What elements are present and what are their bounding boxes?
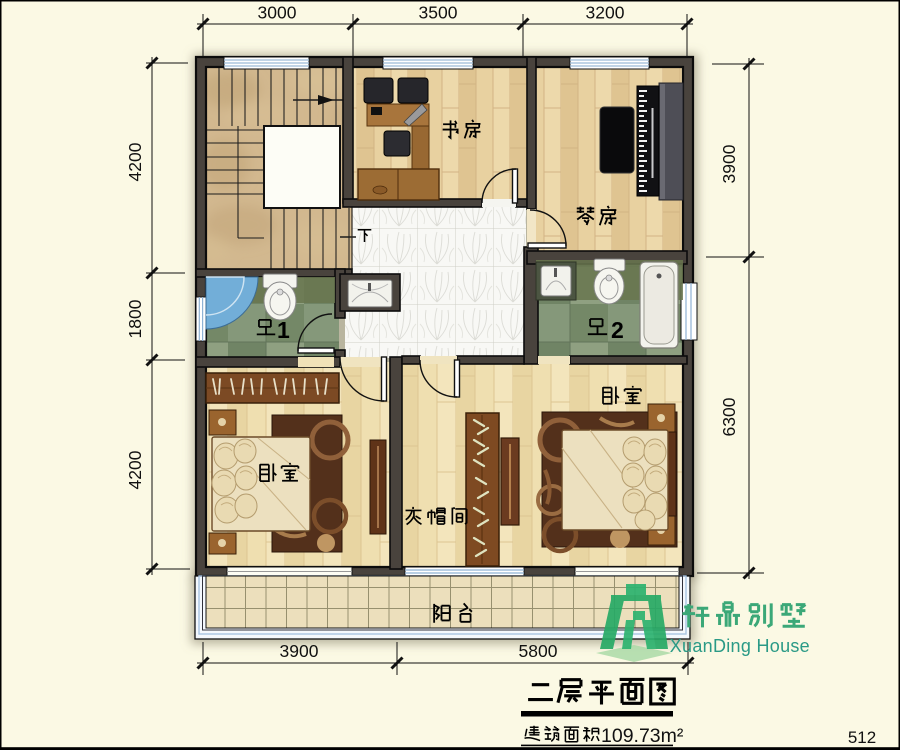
svg-text:512: 512 xyxy=(848,728,876,747)
svg-text:3900: 3900 xyxy=(280,641,319,661)
svg-text:3900: 3900 xyxy=(719,144,739,183)
svg-text:1: 1 xyxy=(277,317,290,343)
svg-text:4200: 4200 xyxy=(125,142,145,181)
svg-text:5800: 5800 xyxy=(519,641,558,661)
svg-text:2: 2 xyxy=(611,317,624,343)
svg-text:4200: 4200 xyxy=(125,450,145,489)
svg-text:3000: 3000 xyxy=(258,3,297,23)
svg-text:1800: 1800 xyxy=(125,299,145,338)
svg-text:6300: 6300 xyxy=(719,397,739,436)
svg-text:XuanDing House: XuanDing House xyxy=(670,636,810,656)
svg-text:3500: 3500 xyxy=(419,3,458,23)
svg-text:3200: 3200 xyxy=(586,3,625,23)
svg-text:109.73m²: 109.73m² xyxy=(601,725,684,747)
